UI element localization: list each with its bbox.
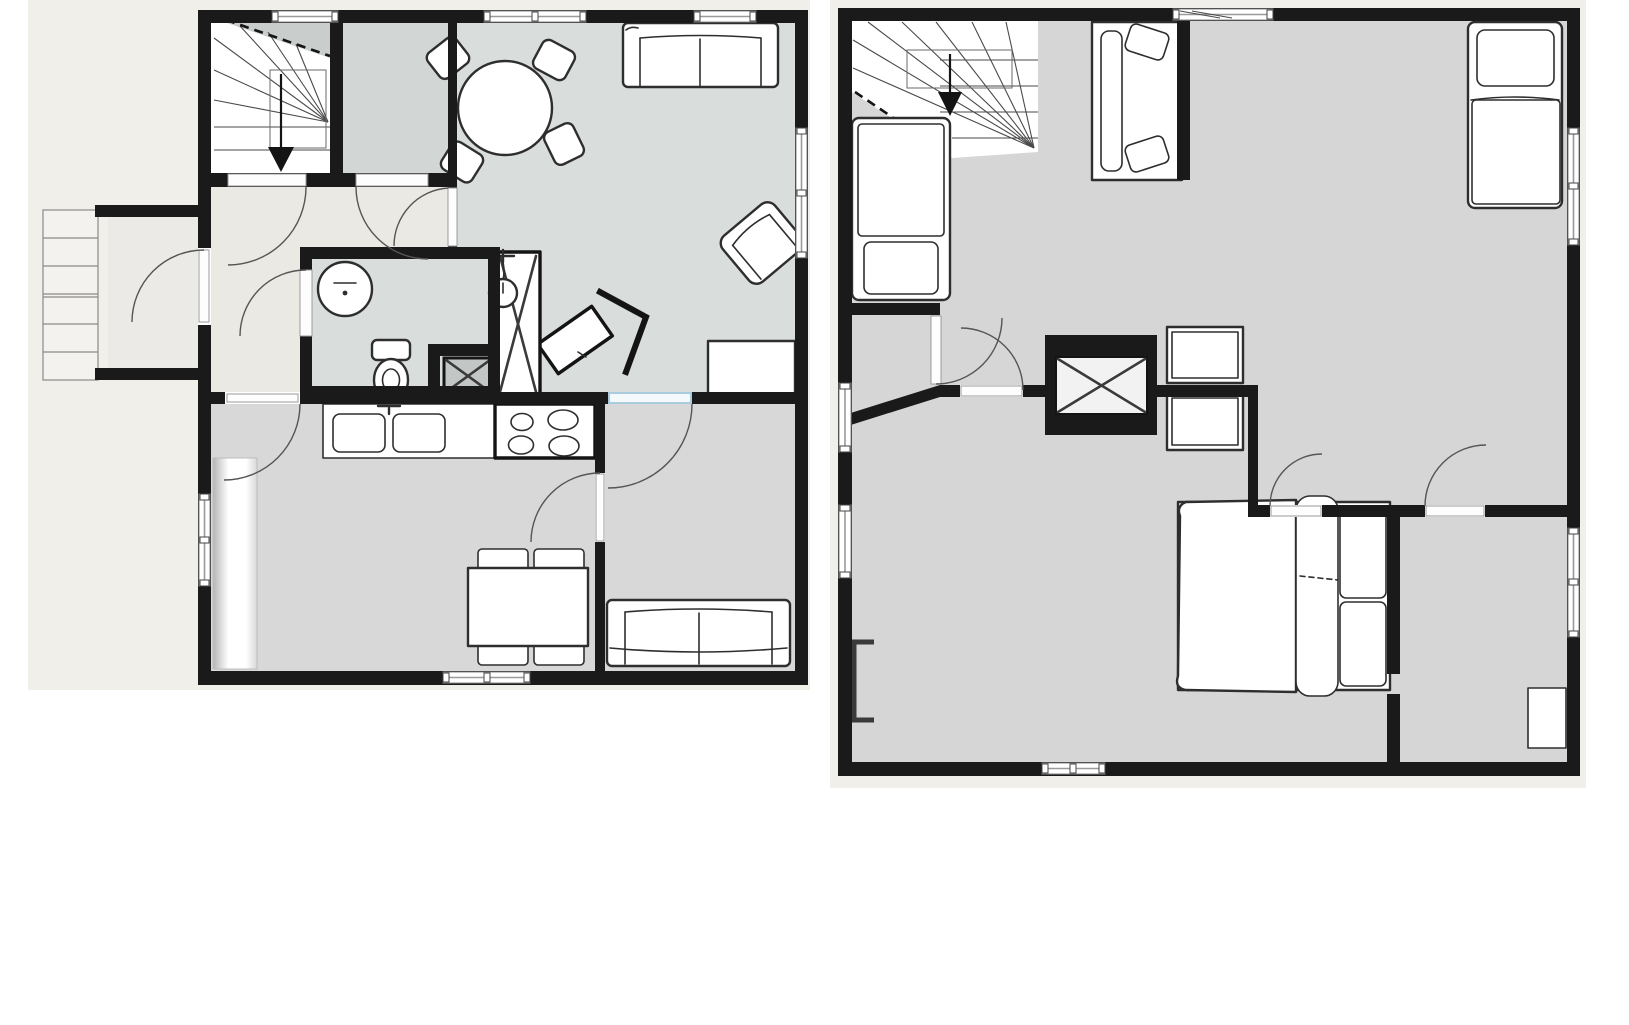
window-right-bedroom (1568, 128, 1579, 245)
window-left-hall (839, 383, 851, 452)
window-bottom-master (1042, 763, 1105, 774)
window-right-bottom-room (1568, 528, 1579, 637)
dresser-bottom (1167, 393, 1243, 450)
upper-floor-plan (0, 0, 1629, 1025)
wall-closet-x-icon (1056, 357, 1147, 414)
single-bed-left (852, 118, 950, 300)
window-left-master (839, 505, 851, 578)
dresser-top (1167, 327, 1243, 383)
single-bed-top-center (1092, 22, 1182, 180)
window-top (1173, 9, 1273, 20)
floor-plan-page (0, 0, 1629, 1025)
single-bed-top-right (1468, 22, 1562, 208)
desk-bottom-right (1528, 688, 1566, 748)
double-bed (1177, 496, 1390, 696)
